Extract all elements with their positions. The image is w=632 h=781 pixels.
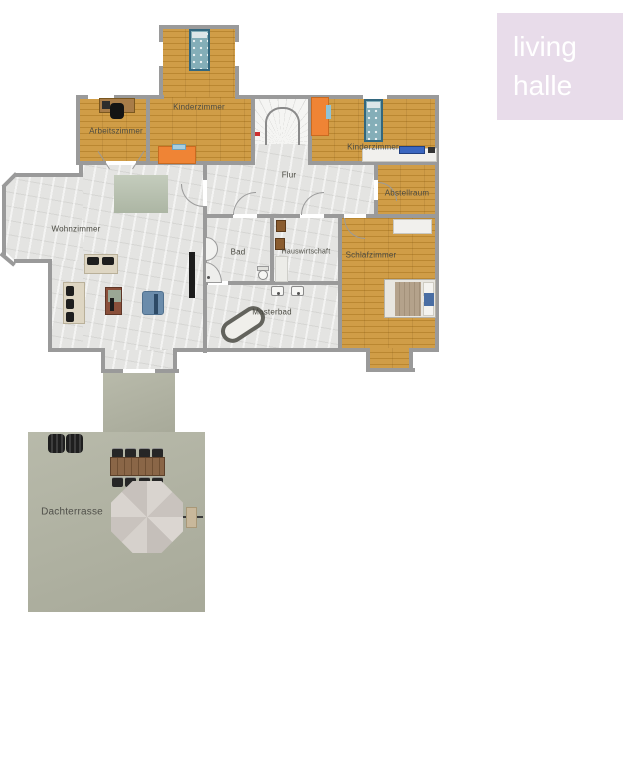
sofa-cushion <box>87 257 99 265</box>
desk-items <box>428 147 435 153</box>
room-floor-wohnzimmer-bay <box>5 175 83 263</box>
room-label-wohnzimmer: Wohnzimmer <box>52 225 101 234</box>
terrace-floor-neck <box>103 373 175 434</box>
floor-plan: Arbeitszimmer Kinderzimmer Kinderzimmer … <box>0 0 632 781</box>
sofa <box>84 254 118 274</box>
bed-pillow <box>192 32 207 38</box>
wall <box>14 259 52 263</box>
window <box>235 42 239 66</box>
wall <box>146 95 150 165</box>
bed-pillow <box>367 102 380 108</box>
sofa-cushion <box>66 312 74 322</box>
wall <box>411 348 439 352</box>
wall <box>270 214 274 285</box>
umbrella-base <box>186 507 197 528</box>
lounge-chair <box>48 434 65 453</box>
sofa-cushion <box>66 299 74 309</box>
stair-marker <box>255 132 260 136</box>
sofa-cushion <box>66 286 74 296</box>
staircase <box>255 99 308 144</box>
dresser <box>393 219 432 234</box>
side-table <box>105 287 122 315</box>
rug <box>114 175 168 213</box>
room-floor-wohnzimmer-entry <box>103 350 175 371</box>
sofa <box>63 282 85 324</box>
desk-monitor <box>102 101 110 109</box>
wall <box>366 368 415 372</box>
wardrobe-shelf <box>326 105 331 119</box>
room-label-dachterrasse: Dachterrasse <box>41 507 103 518</box>
wall <box>48 348 105 352</box>
room-label-masterbad: Masterbad <box>252 308 292 317</box>
room-label-abstellraum: Abstellraum <box>385 189 429 198</box>
lounge-chair <box>66 434 83 453</box>
room-label-kinderzimmer-left: Kinderzimmer <box>173 103 225 112</box>
room-floor-schlafzimmer-bump <box>368 348 411 370</box>
bed <box>189 29 210 71</box>
tv-board <box>189 252 195 298</box>
room-label-arbeitszimmer: Arbeitszimmer <box>89 127 143 136</box>
wall <box>48 259 52 352</box>
sofa-cushion <box>102 257 114 265</box>
laptop <box>399 146 425 154</box>
wall <box>173 348 370 352</box>
door-opening <box>106 161 136 165</box>
sink-drain <box>297 292 300 295</box>
room-label-schlafzimmer: Schlafzimmer <box>346 251 397 260</box>
dining-chair <box>112 477 123 487</box>
bed-pillow-blue <box>424 293 434 306</box>
room-label-hauswirtschaft: Hauswirtschaft <box>282 249 331 256</box>
wall <box>338 214 342 352</box>
toilet-bowl <box>258 270 268 280</box>
washer <box>276 220 286 232</box>
door-opening <box>123 369 155 373</box>
stair-railing <box>265 107 300 145</box>
wall <box>76 95 80 165</box>
room-label-kinderzimmer-right: Kinderzimmer <box>347 143 399 152</box>
bed <box>364 99 383 142</box>
armchair-cushion <box>154 294 158 314</box>
sink-drain <box>277 292 280 295</box>
brand-logo-line1: living <box>513 27 623 66</box>
dining-table <box>110 457 165 476</box>
brand-logo-line2: halle <box>513 66 623 105</box>
room-label-flur: Flur <box>282 171 297 180</box>
brand-logo: living halle <box>497 13 623 120</box>
wall <box>79 161 83 177</box>
office-chair <box>110 103 124 119</box>
side-table-item <box>110 298 114 311</box>
shower-drain <box>207 276 210 279</box>
sink <box>271 286 284 296</box>
toy-box <box>172 144 186 150</box>
bed-blanket <box>395 282 421 316</box>
counter <box>275 256 288 282</box>
wall <box>16 173 83 177</box>
sink <box>291 286 304 296</box>
wall <box>2 186 6 255</box>
double-bed <box>384 279 436 318</box>
room-label-bad: Bad <box>231 248 246 257</box>
window <box>159 42 163 66</box>
armchair <box>142 291 164 315</box>
